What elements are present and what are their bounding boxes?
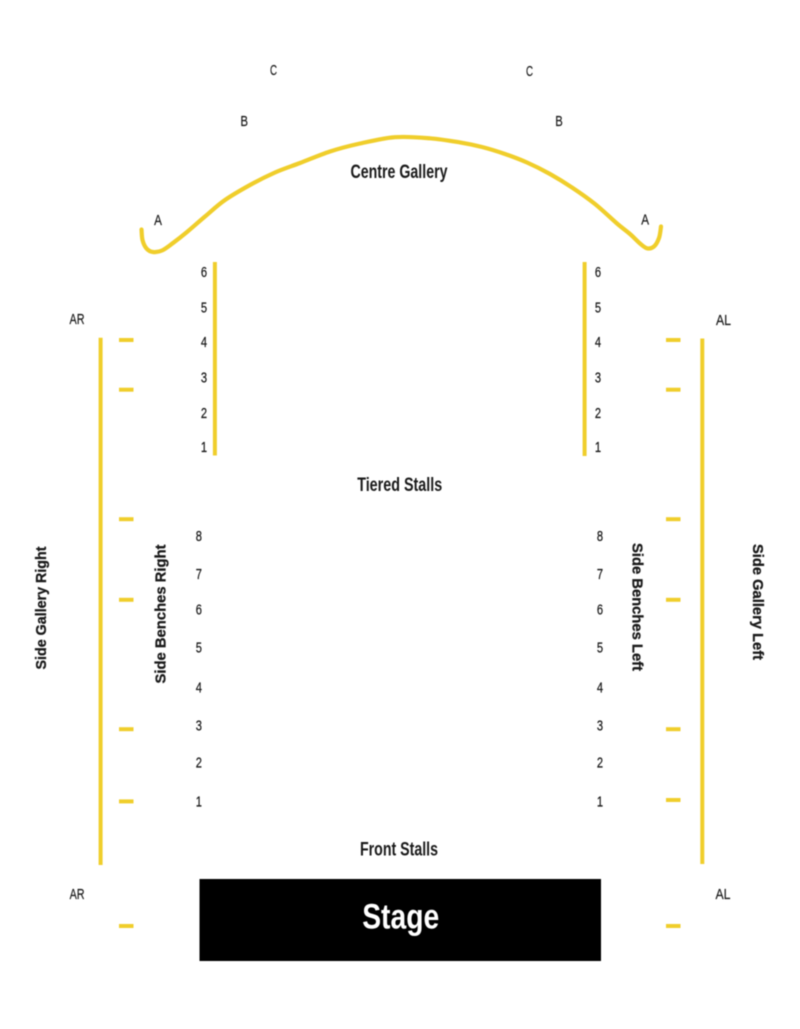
svg-text:Centre Gallery: Centre Gallery xyxy=(351,161,448,183)
svg-text:C: C xyxy=(526,63,533,80)
svg-text:4: 4 xyxy=(595,335,601,351)
svg-text:2: 2 xyxy=(201,406,207,422)
svg-text:5: 5 xyxy=(196,641,202,657)
svg-text:AL: AL xyxy=(716,313,731,329)
svg-text:1: 1 xyxy=(597,795,603,811)
svg-text:AR: AR xyxy=(70,312,85,328)
svg-text:AL: AL xyxy=(716,887,731,903)
svg-text:5: 5 xyxy=(201,301,207,317)
svg-text:6: 6 xyxy=(196,603,202,619)
svg-text:C: C xyxy=(270,62,277,79)
svg-text:6: 6 xyxy=(595,265,601,281)
svg-text:Stage: Stage xyxy=(362,897,439,937)
svg-text:2: 2 xyxy=(196,756,202,772)
svg-text:A: A xyxy=(154,212,162,229)
svg-text:6: 6 xyxy=(201,265,207,281)
svg-text:B: B xyxy=(555,113,563,130)
svg-text:Side Gallery Right: Side Gallery Right xyxy=(33,546,50,669)
svg-text:5: 5 xyxy=(595,301,601,317)
svg-text:1: 1 xyxy=(196,795,202,811)
svg-text:1: 1 xyxy=(201,440,207,456)
svg-text:B: B xyxy=(241,113,249,130)
svg-text:5: 5 xyxy=(597,641,603,657)
svg-text:Front Stalls: Front Stalls xyxy=(360,839,438,861)
svg-text:3: 3 xyxy=(597,719,603,735)
svg-text:Side Gallery Left: Side Gallery Left xyxy=(749,544,766,660)
svg-text:4: 4 xyxy=(196,681,202,697)
svg-text:3: 3 xyxy=(595,371,601,387)
svg-text:8: 8 xyxy=(196,529,202,545)
svg-text:Side Benches Right: Side Benches Right xyxy=(153,544,170,683)
svg-text:1: 1 xyxy=(595,440,601,456)
svg-text:4: 4 xyxy=(201,335,207,351)
svg-text:4: 4 xyxy=(597,681,603,697)
svg-text:AR: AR xyxy=(70,887,85,903)
svg-text:7: 7 xyxy=(597,567,603,583)
svg-text:3: 3 xyxy=(196,719,202,735)
svg-text:A: A xyxy=(641,211,649,228)
svg-text:Tiered Stalls: Tiered Stalls xyxy=(357,474,442,496)
svg-text:7: 7 xyxy=(196,567,202,583)
svg-text:3: 3 xyxy=(201,371,207,387)
svg-text:6: 6 xyxy=(597,603,603,619)
svg-text:Side Benches Left: Side Benches Left xyxy=(629,543,646,671)
svg-text:2: 2 xyxy=(597,756,603,772)
svg-text:8: 8 xyxy=(597,529,603,545)
svg-text:2: 2 xyxy=(595,406,601,422)
